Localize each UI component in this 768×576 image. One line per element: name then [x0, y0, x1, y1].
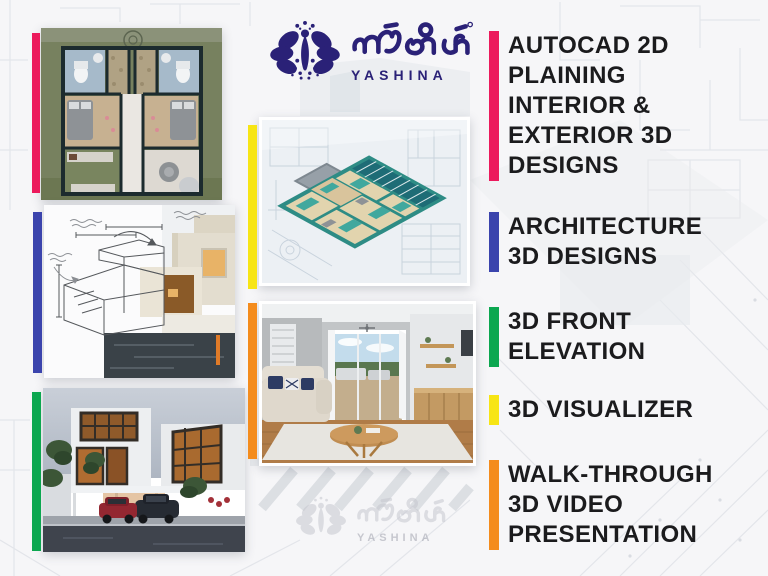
service-line: ELEVATION [508, 337, 645, 367]
service-accent-bar [489, 212, 499, 272]
service-line: INTERIOR & [508, 91, 672, 121]
service-accent-bar [489, 307, 499, 367]
service-accent-bar [489, 460, 499, 550]
accent-bar-iso-floor-plan [248, 125, 257, 289]
service-3d-front-elevation: 3D FRONT ELEVATION [489, 307, 645, 367]
poster-canvas: YASHINA [0, 0, 768, 576]
accent-bar-night-render [32, 392, 41, 551]
service-line: PLAINING [508, 61, 672, 91]
brand-wordmark: YASHINA [348, 20, 476, 83]
brand-logo: YASHINA [270, 20, 476, 83]
watermark-peacock-icon [296, 496, 346, 539]
service-line: 3D VIDEO [508, 490, 713, 520]
accent-bar-interior [248, 303, 257, 459]
figure-exterior-night-render [43, 388, 245, 552]
kannada-wordmark [348, 20, 476, 60]
figure-2d-floor-plan [41, 28, 222, 200]
watermark-kannada-wordmark [354, 496, 450, 526]
service-architecture-3d-designs: ARCHITECTURE 3D DESIGNS [489, 212, 702, 272]
figure-isometric-3d-floor-plan [259, 117, 470, 286]
service-line: EXTERIOR 3D [508, 121, 672, 151]
accent-bar-sketch-house [33, 212, 42, 373]
peacock-icon [270, 20, 340, 80]
figure-interior-living-room [259, 301, 476, 466]
figure-sketch-to-render [44, 205, 235, 378]
service-3d-visualizer: 3D VISUALIZER [489, 395, 693, 425]
service-line: DESIGNS [508, 151, 672, 181]
service-line: AUTOCAD 2D [508, 31, 672, 61]
service-accent-bar [489, 31, 499, 181]
registered-mark [468, 22, 472, 26]
service-accent-bar [489, 395, 499, 425]
service-line: ARCHITECTURE [508, 212, 702, 242]
service-line: 3D DESIGNS [508, 242, 702, 272]
service-line: WALK-THROUGH [508, 460, 713, 490]
service-line: PRESENTATION [508, 520, 713, 550]
service-walkthrough-3d-video: WALK-THROUGH 3D VIDEO PRESENTATION [489, 460, 713, 550]
service-autocad-2d-plaining: AUTOCAD 2D PLAINING INTERIOR & EXTERIOR … [489, 31, 672, 181]
brand-name: YASHINA [351, 67, 476, 83]
watermark-brand-name: YASHINA [357, 532, 450, 544]
brand-watermark: YASHINA [296, 496, 450, 544]
service-line: 3D VISUALIZER [508, 395, 693, 425]
service-line: 3D FRONT [508, 307, 645, 337]
accent-bar-floor-plan [32, 33, 40, 193]
